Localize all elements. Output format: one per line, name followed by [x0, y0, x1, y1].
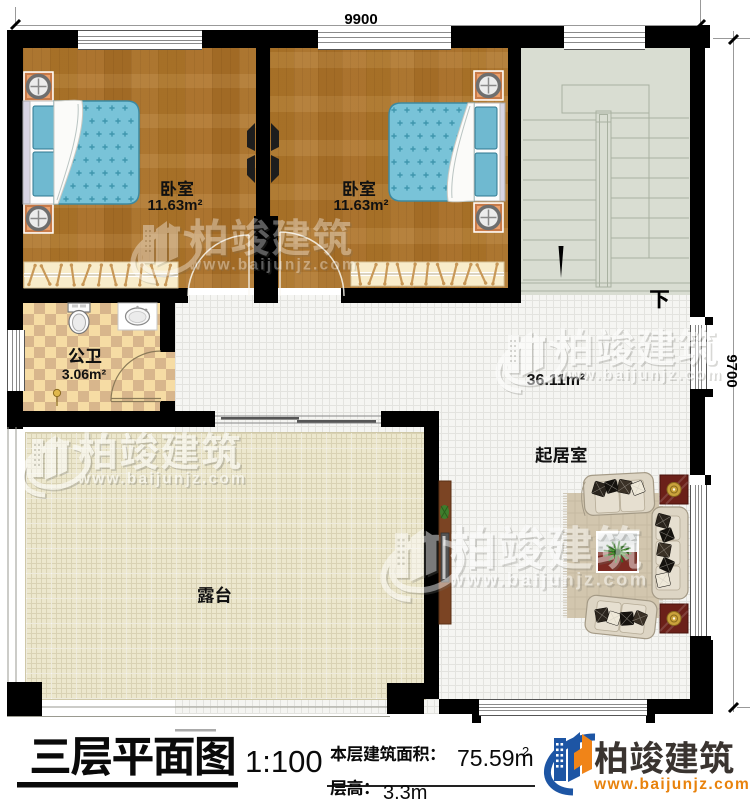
- svg-text:2: 2: [522, 744, 529, 759]
- svg-text:1:100: 1:100: [245, 744, 323, 779]
- svg-text:3.06m²: 3.06m²: [62, 366, 107, 382]
- svg-text:3.3m: 3.3m: [383, 782, 427, 804]
- svg-text:11.63m²: 11.63m²: [333, 197, 388, 214]
- svg-text:11.63m²: 11.63m²: [147, 197, 202, 214]
- svg-text:www.baijunjz.com: www.baijunjz.com: [593, 776, 750, 793]
